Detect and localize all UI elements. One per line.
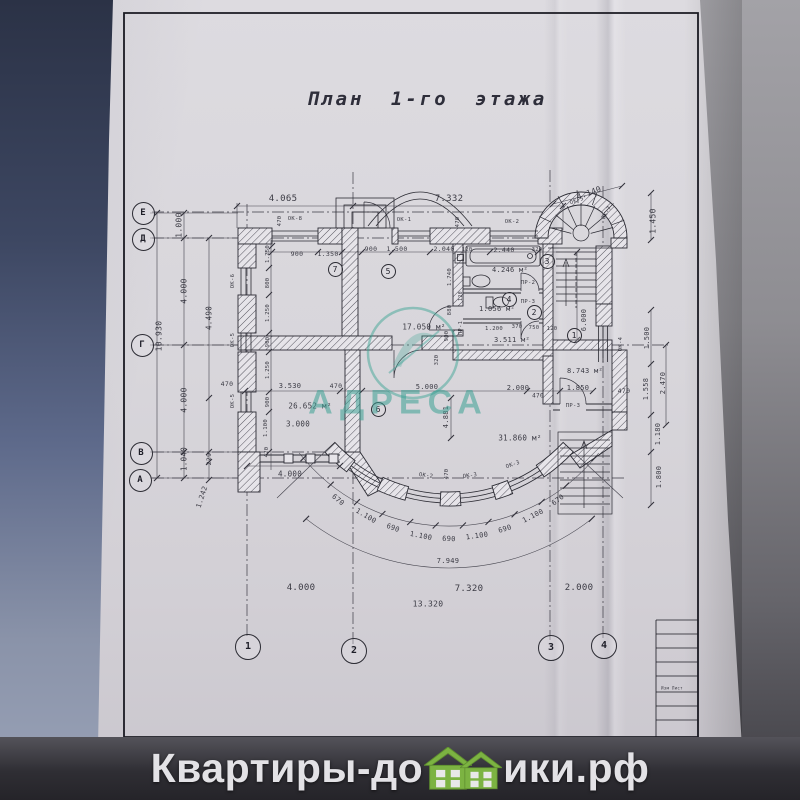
sink-icon [463, 275, 490, 287]
toilet-icon [486, 297, 509, 308]
brand-house-icons [424, 747, 502, 791]
dimension-ticks [154, 183, 669, 529]
entrance-porch [336, 192, 472, 228]
brand-bar: Квартиры-до ики.рф [0, 737, 800, 800]
brand-text-suffix: ики.рф [503, 745, 649, 792]
floor-plan-drawing [0, 0, 800, 800]
page-title: План 1-го этажа [307, 88, 548, 110]
corridor-stair [556, 252, 596, 308]
house-icon [460, 751, 502, 791]
walls [238, 192, 627, 506]
brand-text-prefix: Квартиры-до [151, 745, 424, 792]
partitions [260, 289, 612, 463]
dimension-lines [150, 186, 666, 568]
bathtub-icon [466, 246, 540, 266]
photo-of-floor-plan: План 1-го этажа 4.0657.3324.140ОК-5ОК-71… [0, 0, 800, 800]
